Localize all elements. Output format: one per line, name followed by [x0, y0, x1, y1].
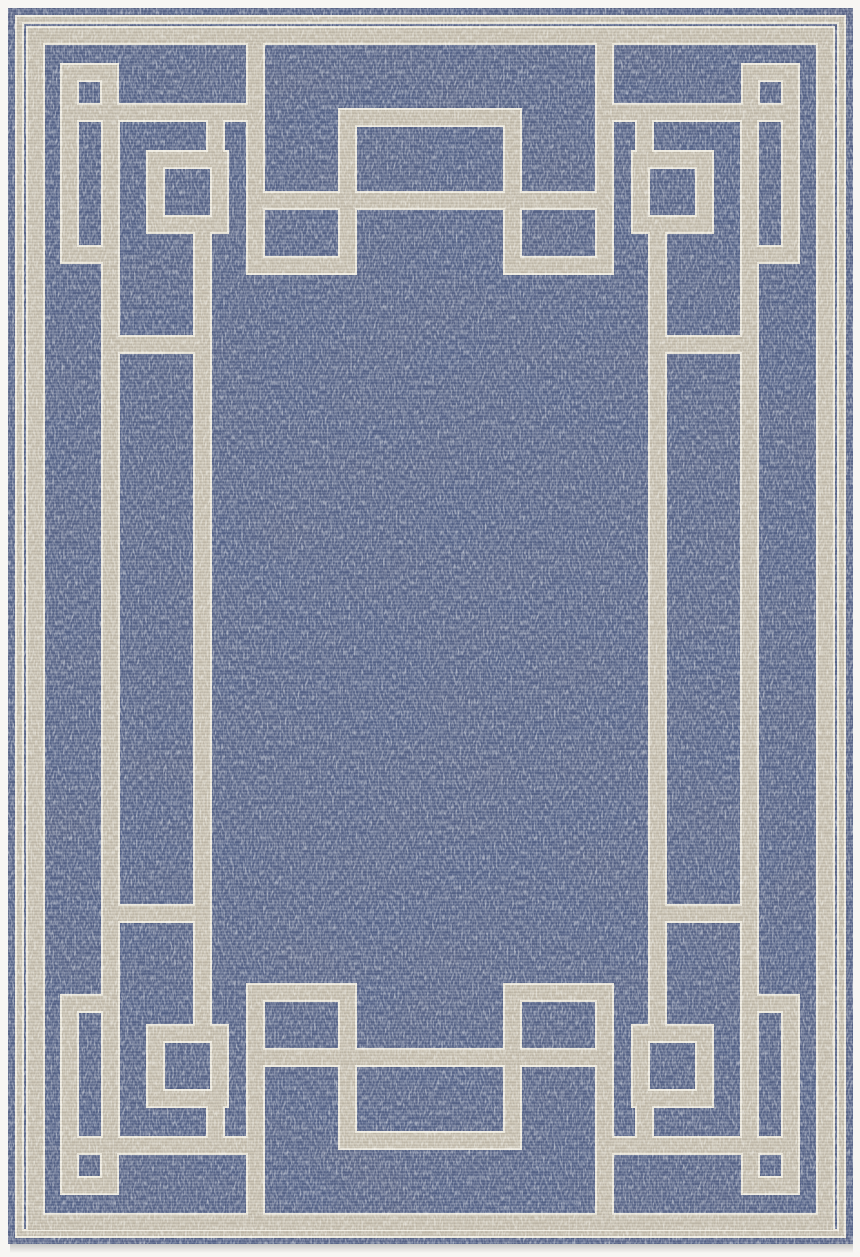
rug-cast-shadow	[10, 1244, 853, 1253]
rug-product-photo	[0, 0, 860, 1257]
product-photo-stage	[0, 0, 860, 1257]
weave-speckle-texture	[8, 8, 853, 1244]
